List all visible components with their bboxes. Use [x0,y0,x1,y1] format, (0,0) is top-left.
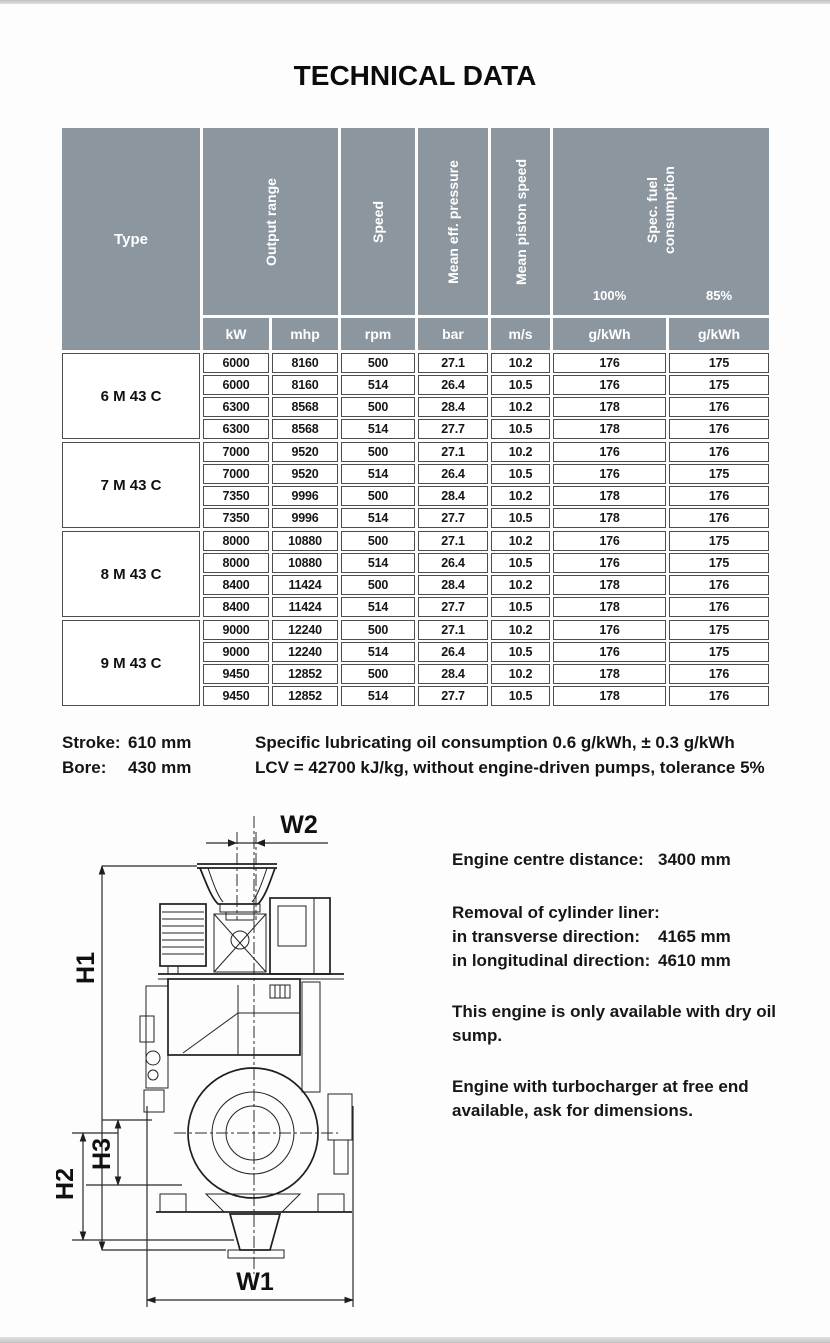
exhaust-housing [270,898,330,974]
data-cell: 8568 [272,397,338,417]
data-cell: 500 [341,531,415,551]
data-cell: 10.2 [491,531,550,551]
data-cell: 176 [553,353,666,373]
data-cell: 500 [341,442,415,462]
transverse-row: in transverse direction: 4165 mm [452,925,788,949]
data-cell: 7350 [203,486,269,506]
data-cell: 12852 [272,686,338,706]
bore-row: Bore: 430 mm [62,755,191,780]
h2-label: H2 [56,1168,79,1200]
data-cell: 10.5 [491,508,550,528]
data-cell: 28.4 [418,486,488,506]
spacer [452,973,788,1000]
data-cell: 7000 [203,464,269,484]
data-cell: 10880 [272,531,338,551]
col-group-sfc: Spec. fuel consumption 100% 85% g/kWh g/… [553,128,769,350]
technical-data-table: Type Output range kW mhp Speed rpm Mean … [62,128,769,706]
col-header-type: Type [62,128,200,350]
data-cell: 10.2 [491,575,550,595]
data-cell: 178 [553,508,666,528]
data-cell: 178 [553,597,666,617]
data-cell: 514 [341,597,415,617]
col-group-mep: Mean eff. pressure bar [418,128,488,350]
turbocharger-note: Engine with turbocharger at free end ava… [452,1075,788,1123]
data-cell: 175 [669,375,769,395]
col-group-speed: Speed rpm [341,128,415,350]
data-cell: 176 [669,597,769,617]
centre-distance-label: Engine centre distance: [452,848,658,872]
data-cell: 176 [553,464,666,484]
engine-group-grid: 6000816050027.110.2176175 6000816051426.… [203,353,769,439]
h3-label: H3 [88,1138,116,1170]
data-cell: 500 [341,575,415,595]
data-cell: 12852 [272,664,338,684]
data-cell: 9000 [203,642,269,662]
centerlines [174,816,338,1274]
mean-eff-pressure-label: Mean eff. pressure [445,160,461,284]
data-cell: 9996 [272,508,338,528]
h3-dimension: H3 [86,1120,182,1185]
data-cell: 178 [553,397,666,417]
data-cell: 6000 [203,375,269,395]
speed-label: Speed [370,200,386,242]
units-sfc: g/kWh g/kWh [553,318,769,350]
dry-sump-note: This engine is only available with dry o… [452,1000,788,1048]
engine-type-cell: 8 M 43 C [62,531,200,617]
data-cell: 500 [341,620,415,640]
col-header-mean-piston-speed: Mean piston speed [491,128,550,315]
data-cell: 8000 [203,531,269,551]
data-cell: 178 [553,486,666,506]
data-cell: 178 [553,419,666,439]
data-cell: 8000 [203,553,269,573]
data-cell: 10.5 [491,419,550,439]
data-cell: 9520 [272,464,338,484]
data-cell: 10.2 [491,442,550,462]
data-cell: 26.4 [418,375,488,395]
data-cell: 176 [669,686,769,706]
data-cell: 27.7 [418,419,488,439]
page-edge-bottom [0,1337,830,1343]
units-output-range: kW mhp [203,318,338,350]
data-cell: 28.4 [418,397,488,417]
data-cell: 27.7 [418,597,488,617]
spacer [452,1048,788,1075]
engine-group-8m43c: 8 M 43 C 80001088050027.110.2176175 8000… [62,531,769,617]
data-cell: 175 [669,531,769,551]
load-100-label: 100% [553,288,666,303]
data-cell: 27.1 [418,620,488,640]
data-cell: 10.5 [491,375,550,395]
h1-dimension: H1 [72,866,226,1250]
w1-label: W1 [236,1268,274,1296]
data-cell: 12240 [272,620,338,640]
engine-group-7m43c: 7 M 43 C 7000952050027.110.2176176 70009… [62,442,769,528]
engine-front-view-drawing: W2 [56,806,446,1311]
lcv-note: LCV = 42700 kJ/kg, without engine-driven… [255,755,765,780]
centre-distance-row: Engine centre distance: 3400 mm [452,848,788,872]
bore-label: Bore: [62,755,128,780]
load-labels: 100% 85% [553,288,769,303]
data-cell: 6300 [203,419,269,439]
data-cell: 10.5 [491,686,550,706]
data-cell: 514 [341,419,415,439]
col-header-mean-eff-pressure: Mean eff. pressure [418,128,488,315]
data-cell: 176 [553,620,666,640]
data-cell: 27.1 [418,442,488,462]
col-group-piston-speed: Mean piston speed m/s [491,128,550,350]
data-cell: 514 [341,553,415,573]
data-cell: 176 [553,442,666,462]
stroke-bore-notes: Stroke: 610 mm Bore: 430 mm [62,730,191,780]
engine-group-6m43c: 6 M 43 C 6000816050027.110.2176175 60008… [62,353,769,439]
data-cell: 178 [553,686,666,706]
bore-value: 430 mm [128,755,191,780]
spec-fuel-line2: consumption [661,166,678,254]
data-cell: 10.2 [491,486,550,506]
data-cell: 8400 [203,597,269,617]
data-cell: 176 [669,486,769,506]
data-cell: 10.5 [491,553,550,573]
data-cell: 175 [669,353,769,373]
data-cell: 176 [669,442,769,462]
data-cell: 9996 [272,486,338,506]
data-cell: 27.1 [418,531,488,551]
engine-block [140,974,352,1174]
data-cell: 9000 [203,620,269,640]
longitudinal-value: 4610 mm [658,949,731,973]
load-85-label: 85% [669,288,769,303]
data-cell: 9450 [203,664,269,684]
data-cell: 514 [341,375,415,395]
data-cell: 176 [553,531,666,551]
data-cell: 176 [553,642,666,662]
data-cell: 8400 [203,575,269,595]
col-header-output-range: Output range [203,128,338,315]
engine-group-grid: 90001224050027.110.2176175 9000122405142… [203,620,769,706]
centre-distance-value: 3400 mm [658,848,731,872]
unit-ms: m/s [491,318,550,350]
data-cell: 27.1 [418,353,488,373]
dimension-info: Engine centre distance: 3400 mm Removal … [452,848,788,1123]
data-cell: 514 [341,642,415,662]
data-cell: 7000 [203,442,269,462]
longitudinal-row: in longitudinal direction: 4610 mm [452,949,788,973]
data-cell: 175 [669,642,769,662]
data-cell: 178 [553,664,666,684]
stroke-row: Stroke: 610 mm [62,730,191,755]
col-group-output-range: Output range kW mhp [203,128,338,350]
data-cell: 6300 [203,397,269,417]
page-edge-top [0,0,830,4]
data-cell: 11424 [272,575,338,595]
data-cell: 514 [341,464,415,484]
data-cell: 26.4 [418,553,488,573]
data-cell: 8160 [272,375,338,395]
data-cell: 176 [669,575,769,595]
lube-note: Specific lubricating oil consumption 0.6… [255,730,765,755]
data-cell: 28.4 [418,575,488,595]
data-cell: 7350 [203,508,269,528]
data-cell: 500 [341,397,415,417]
unit-gkwh-85: g/kWh [669,318,769,350]
data-cell: 514 [341,508,415,528]
w2-label: W2 [280,811,318,839]
engine-type-cell: 7 M 43 C [62,442,200,528]
data-cell: 176 [669,397,769,417]
spacer [452,872,788,901]
data-cell: 10.5 [491,642,550,662]
data-cell: 11424 [272,597,338,617]
page-title: TECHNICAL DATA [0,60,830,92]
col-header-speed: Speed [341,128,415,315]
data-cell: 27.7 [418,686,488,706]
data-cell: 176 [669,508,769,528]
data-cell: 175 [669,553,769,573]
data-cell: 10.5 [491,464,550,484]
data-cell: 12240 [272,642,338,662]
data-cell: 9450 [203,686,269,706]
data-cell: 514 [341,686,415,706]
mean-piston-speed-label: Mean piston speed [513,158,529,284]
unit-mhp: mhp [272,318,338,350]
engine-group-grid: 80001088050027.110.2176175 8000108805142… [203,531,769,617]
data-cell: 500 [341,353,415,373]
data-cell: 6000 [203,353,269,373]
data-cell: 28.4 [418,664,488,684]
data-cell: 8568 [272,419,338,439]
data-cell: 500 [341,486,415,506]
spec-fuel-line1: Spec. fuel [644,166,661,254]
engine-group-grid: 7000952050027.110.2176176 7000952051426.… [203,442,769,528]
engine-type-cell: 9 M 43 C [62,620,200,706]
longitudinal-label: in longitudinal direction: [452,949,658,973]
liner-heading: Removal of cylinder liner: [452,901,788,925]
data-cell: 176 [669,664,769,684]
data-cell: 26.4 [418,642,488,662]
unit-bar: bar [418,318,488,350]
col-header-spec-fuel-consumption: Spec. fuel consumption 100% 85% [553,128,769,315]
h1-label: H1 [72,952,100,984]
w2-dimension: W2 [206,811,328,847]
document-page: TECHNICAL DATA Type Output range kW mhp … [0,0,830,1343]
table-body: 6 M 43 C 6000816050027.110.2176175 60008… [62,353,769,706]
data-cell: 10880 [272,553,338,573]
data-cell: 10.2 [491,620,550,640]
stroke-label: Stroke: [62,730,128,755]
data-cell: 10.2 [491,664,550,684]
data-cell: 178 [553,575,666,595]
data-cell: 26.4 [418,464,488,484]
table-header: Type Output range kW mhp Speed rpm Mean … [62,128,769,350]
turbocharger [214,914,266,972]
unit-gkwh-100: g/kWh [553,318,666,350]
data-cell: 176 [553,553,666,573]
data-cell: 500 [341,664,415,684]
stroke-value: 610 mm [128,730,191,755]
data-cell: 175 [669,620,769,640]
data-cell: 176 [553,375,666,395]
data-cell: 8160 [272,353,338,373]
data-cell: 10.2 [491,397,550,417]
engine-type-cell: 6 M 43 C [62,353,200,439]
h2-dimension: H2 [56,1133,234,1240]
unit-kw: kW [203,318,269,350]
data-cell: 27.7 [418,508,488,528]
data-cell: 9520 [272,442,338,462]
data-cell: 10.5 [491,597,550,617]
charge-air-cooler [160,904,206,974]
output-range-label: Output range [263,178,279,266]
unit-rpm: rpm [341,318,415,350]
engine-group-9m43c: 9 M 43 C 90001224050027.110.2176175 9000… [62,620,769,706]
spec-fuel-label: Spec. fuel consumption [644,166,678,254]
data-cell: 10.2 [491,353,550,373]
data-cell: 176 [669,419,769,439]
data-cell: 175 [669,464,769,484]
consumption-notes: Specific lubricating oil consumption 0.6… [255,730,765,780]
transverse-label: in transverse direction: [452,925,658,949]
transverse-value: 4165 mm [658,925,731,949]
w1-dimension: W1 [147,1106,353,1307]
